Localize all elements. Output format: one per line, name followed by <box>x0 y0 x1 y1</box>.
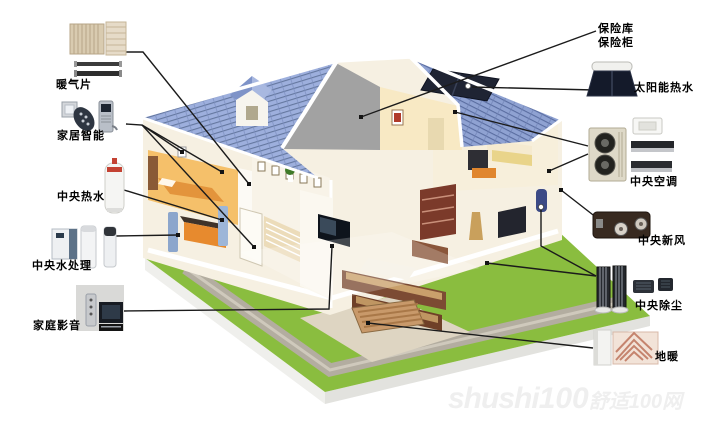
label-smart-home: 家居智能 <box>57 130 105 143</box>
ac-outdoor-unit-icon <box>589 128 626 181</box>
label-central-ac: 中央空调 <box>630 176 678 189</box>
home-theater-icon <box>76 285 124 331</box>
label-safe-line1: 保险库 <box>598 23 634 36</box>
house-illustration <box>0 0 717 426</box>
picture-frame <box>272 166 279 175</box>
speaker-tower <box>168 212 178 252</box>
picture-frame <box>258 162 265 171</box>
attic-door <box>428 118 444 150</box>
label-hot-water: 中央热水 <box>57 191 105 204</box>
floor-heating-coil-icon <box>594 330 658 365</box>
speaker-tower <box>218 206 228 246</box>
watermark: shushi100舒适100网 <box>448 382 713 416</box>
radiator-icon <box>70 22 126 77</box>
label-fresh-air: 中央新风 <box>638 235 686 248</box>
smart-home-diagram: 暖气片 家居智能 中央热水 中央水处理 家庭影音 保险库 保险柜 太阳能热水 中… <box>0 0 717 426</box>
label-vacuum: 中央除尘 <box>635 300 683 313</box>
dresser <box>472 168 496 178</box>
solar-collector-icon <box>587 62 637 96</box>
watermark-number: 100 <box>539 382 589 415</box>
tv-cabinet <box>468 150 488 170</box>
label-water-treatment: 中央水处理 <box>32 260 92 273</box>
ac-cassette-icon <box>633 118 662 134</box>
leader-line-fresh-air <box>561 190 597 218</box>
label-solar: 太阳能热水 <box>634 82 694 95</box>
label-radiator: 暖气片 <box>56 79 92 92</box>
leader-line-water-treatment <box>116 235 178 236</box>
label-safe-line2: 保险柜 <box>598 37 634 50</box>
watermark-latin: shushi <box>448 382 539 415</box>
label-floor-heating: 地暖 <box>655 351 679 364</box>
wardrobe <box>148 156 158 190</box>
watermark-cn: 舒适100网 <box>589 391 682 413</box>
ac-duct-unit-icon <box>631 141 674 172</box>
label-home-av: 家庭影音 <box>33 320 81 333</box>
water-heater-tank-icon <box>105 158 124 213</box>
